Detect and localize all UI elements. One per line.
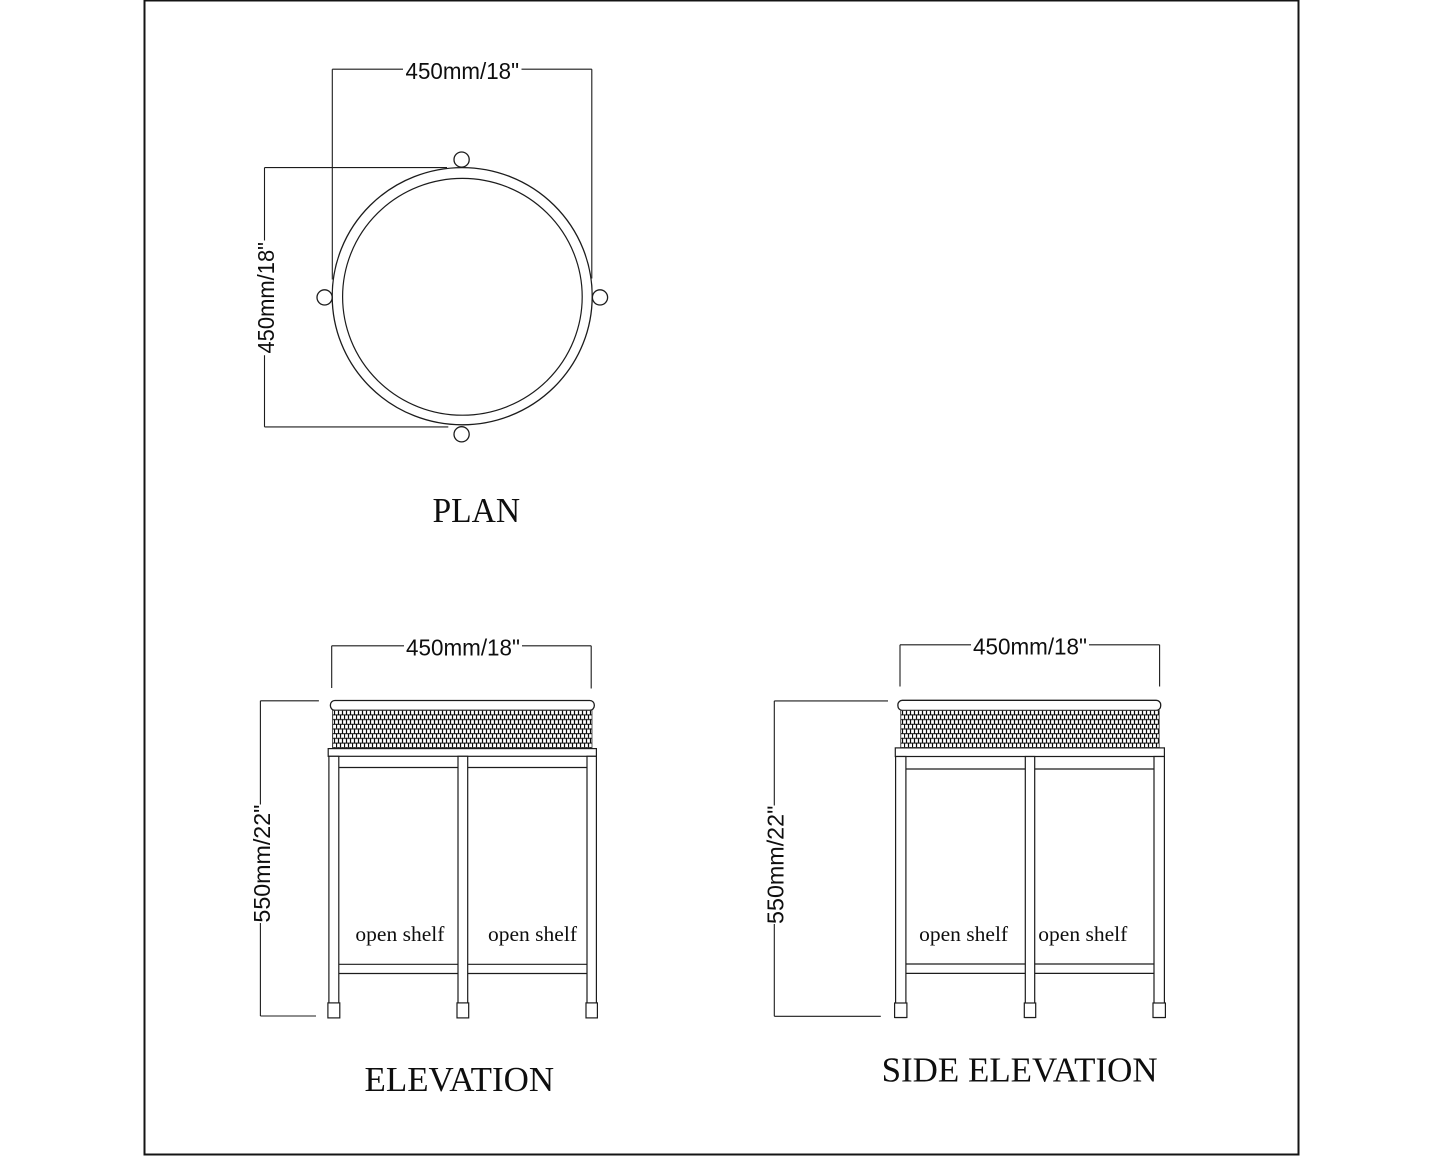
svg-text:open shelf: open shelf [355, 922, 444, 946]
svg-text:450mm/18": 450mm/18" [973, 634, 1087, 660]
svg-text:450mm/18": 450mm/18" [253, 242, 279, 354]
svg-text:450mm/18": 450mm/18" [406, 635, 520, 661]
svg-text:PLAN: PLAN [433, 491, 521, 530]
svg-text:open shelf: open shelf [1038, 922, 1127, 946]
svg-text:open shelf: open shelf [488, 922, 577, 946]
svg-text:SIDE ELEVATION: SIDE ELEVATION [882, 1050, 1158, 1089]
svg-text:450mm/18": 450mm/18" [406, 58, 520, 84]
svg-text:ELEVATION: ELEVATION [365, 1060, 555, 1099]
svg-text:open shelf: open shelf [919, 922, 1008, 946]
svg-text:550mm/22": 550mm/22" [249, 805, 275, 923]
svg-text:550mm/22": 550mm/22" [763, 806, 789, 924]
